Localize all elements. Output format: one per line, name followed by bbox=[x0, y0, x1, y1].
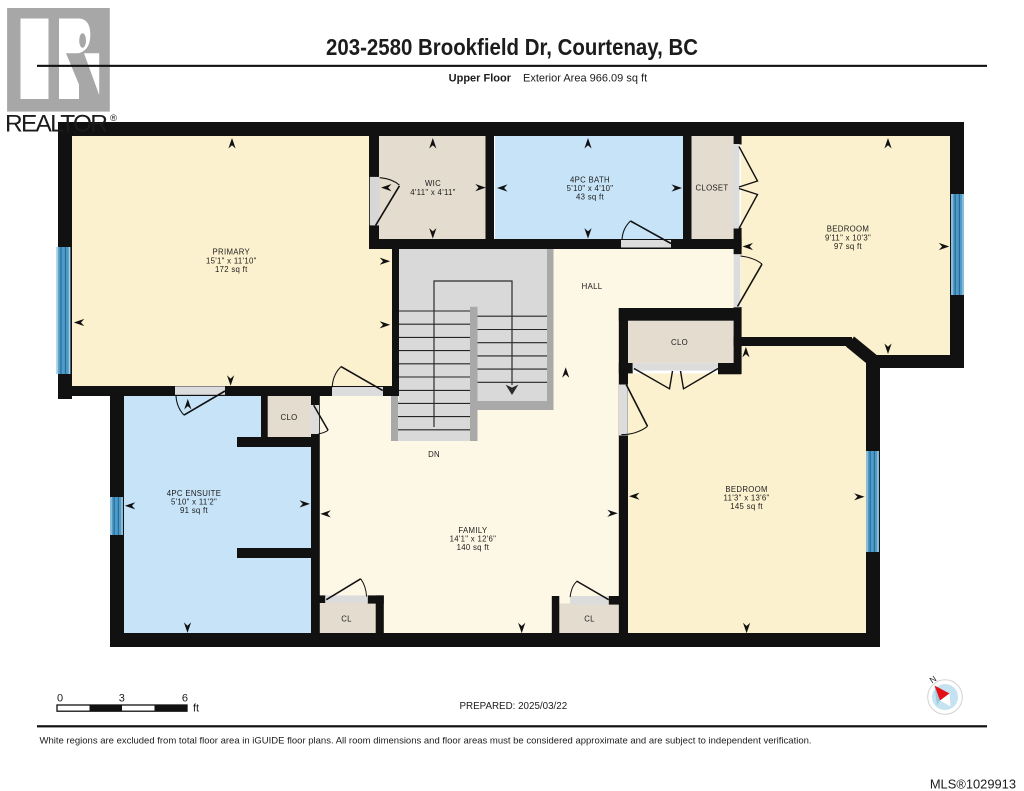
svg-text:145 sq ft: 145 sq ft bbox=[730, 502, 763, 511]
svg-text:White regions are excluded fro: White regions are excluded from total fl… bbox=[40, 736, 812, 747]
svg-text:Exterior Area 966.09 sq ft: Exterior Area 966.09 sq ft bbox=[523, 73, 647, 85]
svg-text:CLO: CLO bbox=[671, 338, 688, 347]
svg-text:97 sq ft: 97 sq ft bbox=[834, 242, 863, 251]
svg-text:CL: CL bbox=[341, 614, 352, 623]
svg-text:4'11" x 4'11": 4'11" x 4'11" bbox=[410, 188, 456, 197]
svg-text:43 sq ft: 43 sq ft bbox=[576, 193, 605, 202]
svg-text:3: 3 bbox=[119, 693, 125, 705]
svg-text:MLS®1029913: MLS®1029913 bbox=[930, 777, 1016, 791]
svg-text:91 sq ft: 91 sq ft bbox=[180, 506, 209, 515]
svg-text:WIC: WIC bbox=[425, 179, 441, 188]
svg-text:DN: DN bbox=[428, 450, 440, 459]
svg-text:Upper Floor: Upper Floor bbox=[449, 73, 512, 85]
svg-text:HALL: HALL bbox=[582, 282, 603, 291]
svg-text:PREPARED: 2025/03/22: PREPARED: 2025/03/22 bbox=[460, 701, 568, 712]
svg-text:6: 6 bbox=[182, 693, 188, 705]
svg-text:REALTOR: REALTOR bbox=[5, 111, 108, 138]
svg-text:0: 0 bbox=[57, 693, 63, 705]
svg-text:®: ® bbox=[110, 113, 117, 124]
svg-text:CLOSET: CLOSET bbox=[696, 183, 729, 192]
svg-text:140 sq ft: 140 sq ft bbox=[457, 543, 490, 552]
svg-text:CLO: CLO bbox=[281, 413, 298, 422]
svg-text:CL: CL bbox=[584, 614, 595, 623]
svg-text:203-2580 Brookfield Dr, Courte: 203-2580 Brookfield Dr, Courtenay, BC bbox=[326, 34, 698, 60]
svg-text:172 sq ft: 172 sq ft bbox=[215, 265, 248, 274]
svg-text:ft: ft bbox=[193, 703, 199, 715]
